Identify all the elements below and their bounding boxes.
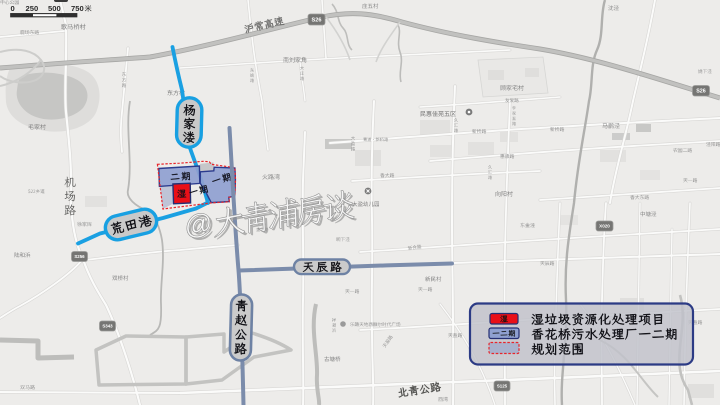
svg-text:X020: X020 — [599, 224, 610, 229]
svg-text:750: 750 — [71, 4, 84, 13]
svg-text:S343: S343 — [102, 324, 113, 329]
svg-text:S125: S125 — [497, 384, 508, 389]
svg-text:0: 0 — [11, 4, 15, 13]
svg-text:S256: S256 — [74, 254, 85, 259]
svg-text:S26: S26 — [312, 18, 322, 24]
svg-text:S26: S26 — [696, 89, 706, 95]
svg-text:500: 500 — [48, 4, 61, 13]
svg-text:250: 250 — [26, 4, 39, 13]
